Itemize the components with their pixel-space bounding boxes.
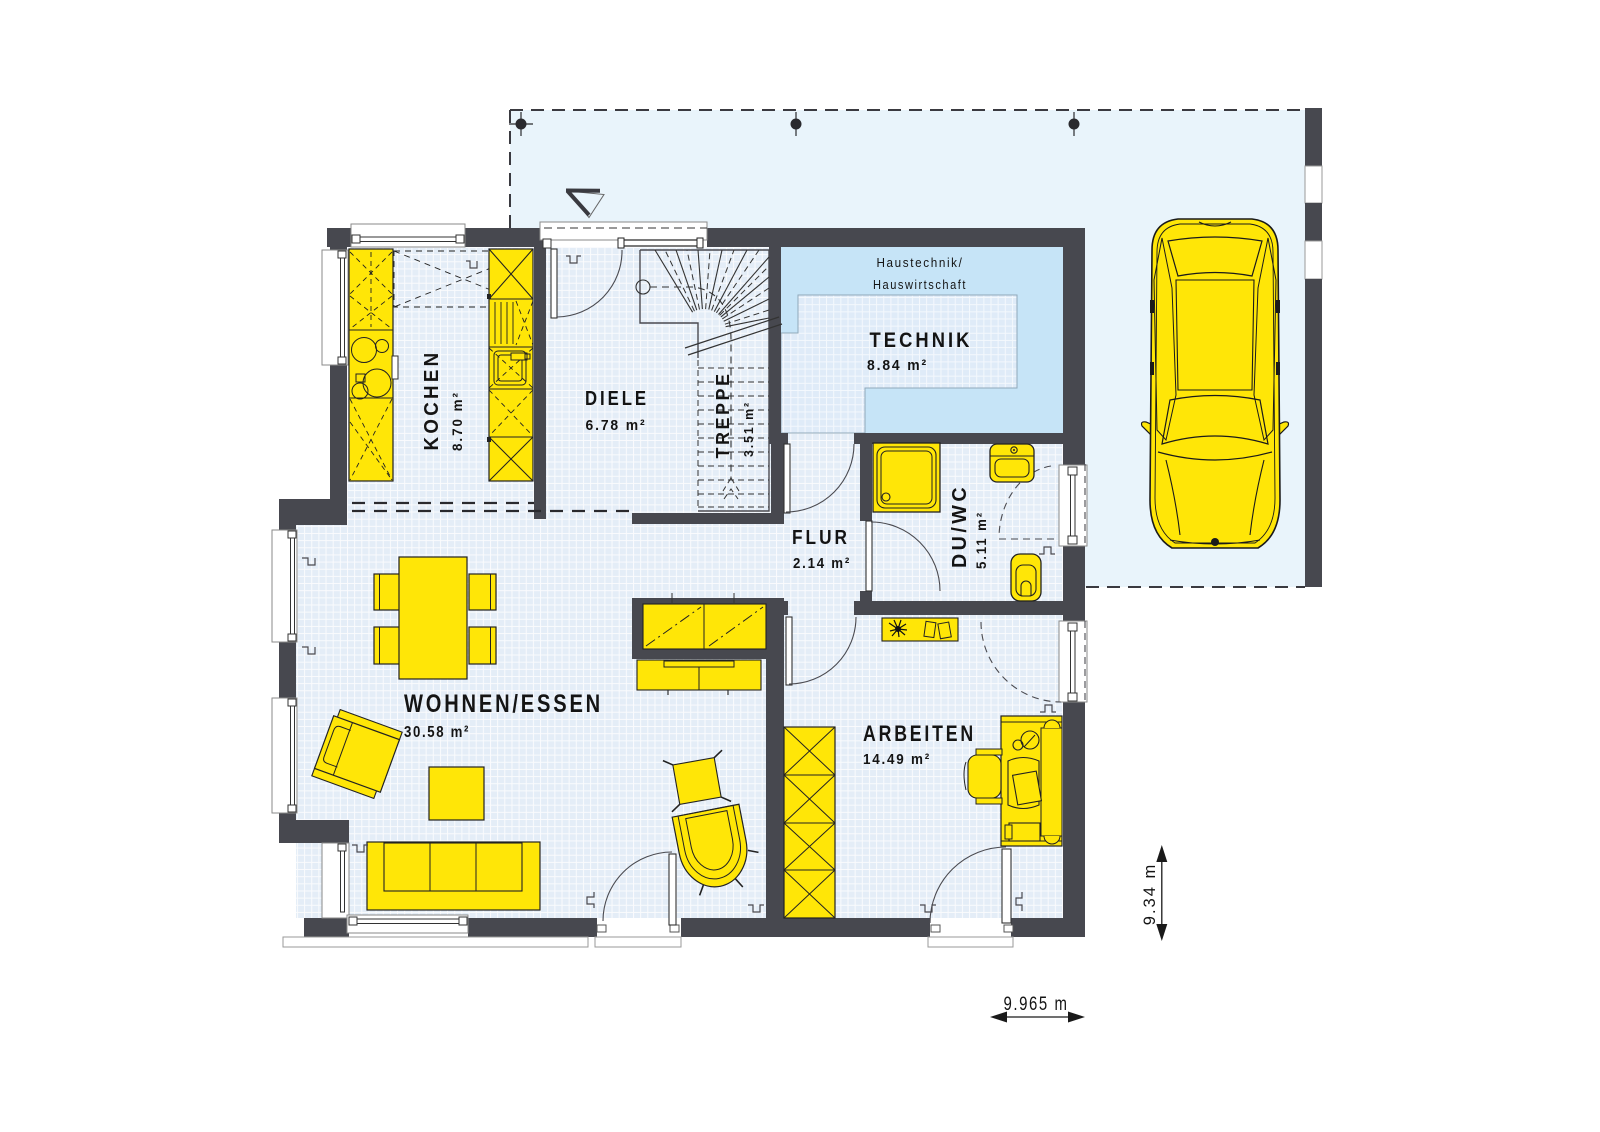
svg-text:Hauswirtschaft: Hauswirtschaft [873,277,967,292]
svg-text:KOCHEN: KOCHEN [421,350,443,451]
svg-text:DU/WC: DU/WC [949,484,971,568]
svg-text:9.965 m: 9.965 m [1004,994,1069,1015]
svg-text:8.84 m²: 8.84 m² [867,357,928,374]
svg-text:FLUR: FLUR [792,527,850,549]
svg-text:9.34 m: 9.34 m [1141,863,1159,925]
svg-text:5.11 m²: 5.11 m² [973,511,989,569]
svg-text:14.49 m²: 14.49 m² [863,751,931,768]
svg-text:8.70 m²: 8.70 m² [450,391,465,451]
svg-text:DIELE: DIELE [585,388,649,410]
svg-text:WOHNEN/ESSEN: WOHNEN/ESSEN [404,690,603,718]
svg-text:TECHNIK: TECHNIK [870,329,973,352]
svg-text:3.51 m²: 3.51 m² [742,401,756,457]
svg-text:Haustechnik/: Haustechnik/ [877,255,964,270]
svg-text:2.14 m²: 2.14 m² [793,555,851,572]
svg-text:TREPPE: TREPPE [713,372,733,459]
svg-text:6.78 m²: 6.78 m² [586,417,647,434]
svg-text:30.58 m²: 30.58 m² [404,724,470,741]
svg-text:ARBEITEN: ARBEITEN [863,721,976,746]
